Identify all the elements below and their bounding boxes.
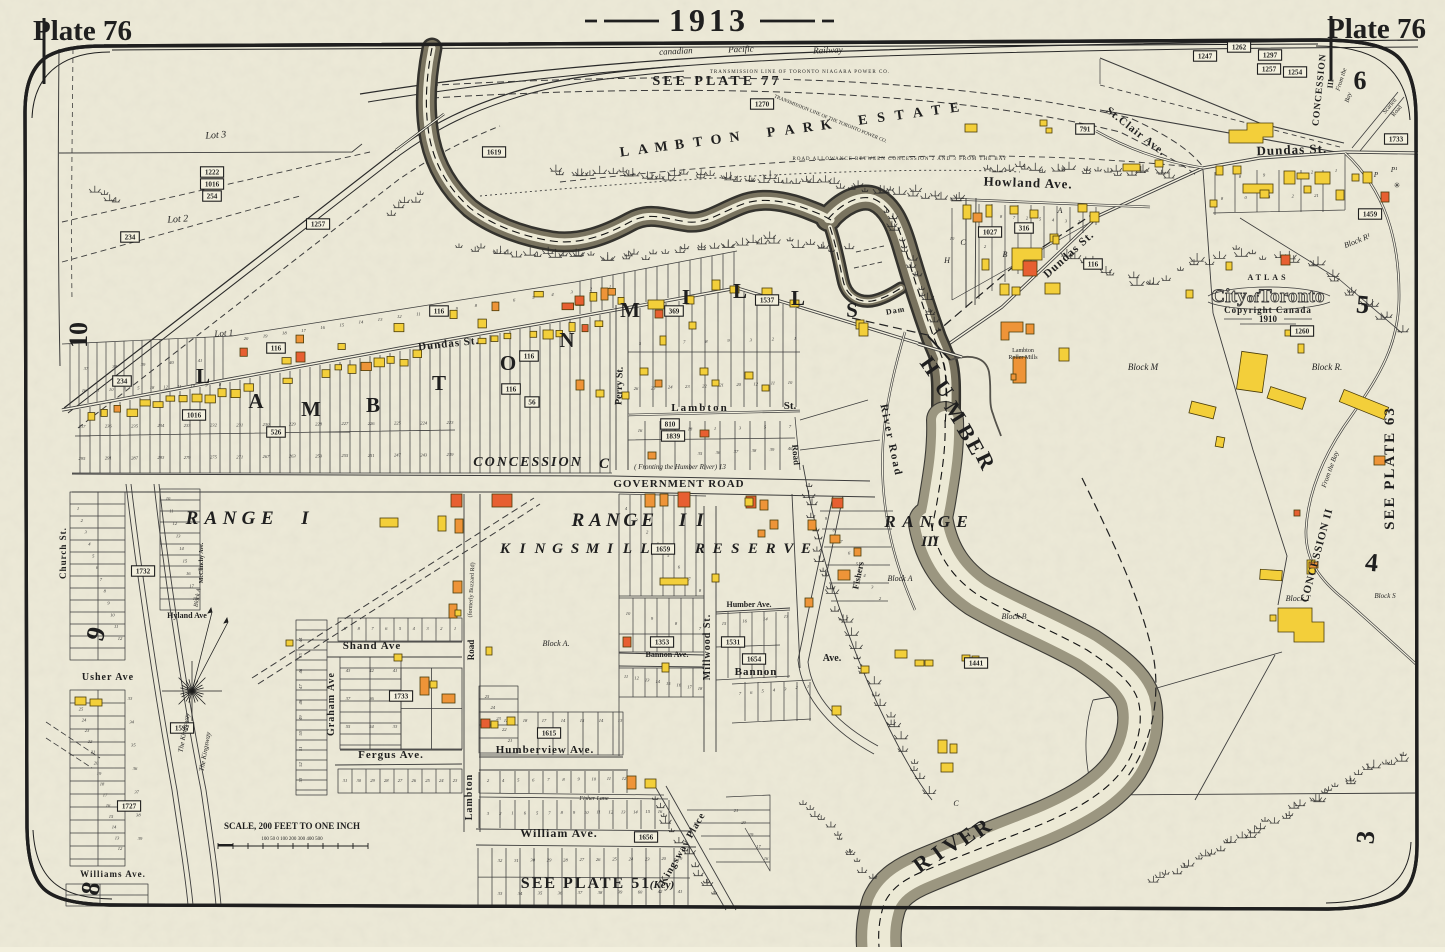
svg-text:228: 228 bbox=[315, 421, 323, 426]
svg-text:526: 526 bbox=[271, 429, 282, 437]
svg-text:44: 44 bbox=[298, 637, 303, 642]
svg-text:13: 13 bbox=[645, 677, 650, 682]
svg-text:(Key): (Key) bbox=[650, 879, 674, 891]
svg-text:S: S bbox=[846, 298, 858, 322]
svg-text:23: 23 bbox=[685, 384, 690, 389]
svg-text:41: 41 bbox=[198, 358, 203, 363]
svg-text:1727: 1727 bbox=[122, 803, 137, 811]
svg-text:Ave.: Ave. bbox=[823, 653, 842, 664]
svg-text:10: 10 bbox=[950, 236, 955, 241]
svg-text:III: III bbox=[1326, 79, 1336, 89]
svg-text:Dundas St.: Dundas St. bbox=[1256, 141, 1327, 158]
svg-text:26: 26 bbox=[411, 778, 416, 783]
svg-text:10: 10 bbox=[166, 496, 171, 501]
svg-text:12: 12 bbox=[118, 636, 123, 641]
svg-text:R: R bbox=[883, 512, 895, 531]
svg-text:ATLAS: ATLAS bbox=[1247, 273, 1288, 282]
svg-text:E: E bbox=[640, 510, 654, 531]
svg-text:3: 3 bbox=[1351, 830, 1381, 845]
svg-text:Fergus Ave.: Fergus Ave. bbox=[358, 749, 424, 761]
svg-text:N: N bbox=[559, 328, 574, 352]
svg-text:21: 21 bbox=[734, 808, 739, 813]
svg-text:24: 24 bbox=[490, 705, 495, 710]
svg-text:11: 11 bbox=[95, 387, 99, 392]
svg-text:20: 20 bbox=[244, 336, 249, 341]
svg-text:1656: 1656 bbox=[639, 834, 654, 842]
svg-text:C: C bbox=[953, 799, 959, 808]
svg-text:ROAD ALLOWANCE BETWEEN CONCESS: ROAD ALLOWANCE BETWEEN CONCESSION 2 AND … bbox=[793, 157, 1008, 162]
svg-text:N: N bbox=[605, 510, 621, 531]
svg-text:N: N bbox=[919, 512, 933, 531]
svg-text:233: 233 bbox=[184, 423, 192, 428]
svg-text:SCALE, 200 FEET TO ONE INCH: SCALE, 200 FEET TO ONE INCH bbox=[224, 821, 360, 831]
svg-text:39: 39 bbox=[138, 836, 143, 841]
svg-text:Lambton: Lambton bbox=[671, 402, 728, 414]
svg-text:13: 13 bbox=[115, 835, 120, 840]
svg-text:56: 56 bbox=[528, 399, 536, 407]
svg-text:43: 43 bbox=[346, 668, 351, 673]
svg-text:1: 1 bbox=[794, 336, 796, 341]
svg-text:19: 19 bbox=[749, 832, 754, 837]
svg-text:21: 21 bbox=[508, 738, 513, 743]
svg-text:41: 41 bbox=[678, 889, 683, 894]
svg-text:1910: 1910 bbox=[1259, 314, 1278, 324]
svg-text:Usher Ave: Usher Ave bbox=[82, 672, 134, 683]
svg-text:14: 14 bbox=[359, 320, 364, 325]
svg-text:G: G bbox=[552, 541, 563, 557]
svg-text:C: C bbox=[960, 238, 966, 247]
svg-text:263: 263 bbox=[289, 454, 297, 459]
svg-text:1353: 1353 bbox=[655, 639, 670, 647]
svg-text:11: 11 bbox=[114, 624, 118, 629]
svg-text:291: 291 bbox=[105, 456, 112, 461]
svg-text:Road: Road bbox=[790, 444, 802, 465]
svg-text:24: 24 bbox=[82, 717, 87, 722]
svg-text:1297: 1297 bbox=[1263, 52, 1278, 60]
svg-text:16: 16 bbox=[82, 388, 87, 393]
svg-text:267: 267 bbox=[263, 454, 271, 459]
svg-text:49: 49 bbox=[298, 715, 303, 720]
svg-text:15: 15 bbox=[645, 809, 650, 814]
svg-text:28: 28 bbox=[563, 857, 568, 862]
svg-text:10: 10 bbox=[110, 612, 115, 617]
svg-text:McClinchy Ave.: McClinchy Ave. bbox=[199, 542, 205, 583]
svg-text:15: 15 bbox=[722, 621, 727, 626]
svg-text:1732: 1732 bbox=[136, 568, 151, 576]
svg-text:24: 24 bbox=[439, 778, 444, 783]
svg-text:11: 11 bbox=[177, 384, 181, 389]
svg-text:232: 232 bbox=[210, 423, 218, 428]
svg-text:Block M: Block M bbox=[1128, 362, 1159, 372]
svg-text:16: 16 bbox=[658, 809, 663, 814]
svg-text:17: 17 bbox=[189, 584, 194, 589]
svg-text:21: 21 bbox=[1314, 193, 1319, 198]
svg-text:N: N bbox=[222, 508, 238, 529]
svg-text:46: 46 bbox=[298, 668, 303, 673]
svg-text:10: 10 bbox=[584, 810, 589, 815]
svg-text:Railway: Railway bbox=[812, 44, 843, 55]
svg-text:A: A bbox=[248, 389, 264, 413]
svg-text:229: 229 bbox=[289, 422, 297, 427]
svg-text:225: 225 bbox=[394, 421, 402, 426]
svg-text:1531: 1531 bbox=[726, 639, 741, 647]
svg-text:29: 29 bbox=[370, 778, 375, 783]
svg-text:15: 15 bbox=[339, 322, 344, 327]
svg-text:1257: 1257 bbox=[311, 221, 326, 229]
svg-text:37: 37 bbox=[734, 449, 739, 454]
svg-text:14: 14 bbox=[179, 546, 184, 551]
svg-text:P¹: P¹ bbox=[1390, 166, 1397, 174]
svg-text:Fisher Lane: Fisher Lane bbox=[578, 796, 609, 802]
svg-text:III: III bbox=[920, 534, 940, 550]
svg-text:52: 52 bbox=[298, 761, 303, 766]
svg-text:11: 11 bbox=[607, 776, 611, 781]
svg-text:26: 26 bbox=[596, 857, 601, 862]
svg-text:Hyland Ave: Hyland Ave bbox=[167, 611, 207, 620]
svg-text:Bannon: Bannon bbox=[735, 666, 778, 678]
svg-text:Block R.: Block R. bbox=[1312, 362, 1343, 372]
svg-text:48: 48 bbox=[298, 699, 303, 704]
svg-text:51: 51 bbox=[298, 747, 303, 752]
svg-text:1016: 1016 bbox=[205, 181, 220, 189]
svg-text:5: 5 bbox=[1355, 290, 1370, 320]
svg-text:E: E bbox=[260, 508, 274, 529]
svg-text:1459: 1459 bbox=[1363, 211, 1378, 219]
svg-text:18: 18 bbox=[150, 385, 155, 390]
svg-text:15: 15 bbox=[666, 681, 671, 686]
svg-text:22: 22 bbox=[88, 739, 93, 744]
svg-text:810: 810 bbox=[665, 421, 676, 429]
svg-text:1913: 1913 bbox=[669, 2, 749, 38]
svg-text:14: 14 bbox=[763, 616, 768, 621]
svg-text:1254: 1254 bbox=[1288, 69, 1303, 77]
svg-text:13: 13 bbox=[378, 317, 383, 322]
svg-text:226: 226 bbox=[368, 421, 376, 426]
svg-text:12: 12 bbox=[172, 521, 177, 526]
svg-text:1262: 1262 bbox=[1232, 44, 1247, 52]
svg-text:37: 37 bbox=[346, 696, 351, 701]
svg-text:227: 227 bbox=[341, 421, 349, 426]
svg-text:R: R bbox=[571, 510, 585, 531]
svg-text:SEE PLATE 51: SEE PLATE 51 bbox=[521, 875, 651, 892]
svg-text:32: 32 bbox=[498, 858, 503, 863]
svg-text:12: 12 bbox=[609, 810, 614, 815]
svg-text:Church St.: Church St. bbox=[58, 527, 68, 579]
svg-text:259: 259 bbox=[315, 453, 323, 458]
svg-text:Humberview Ave.: Humberview Ave. bbox=[496, 744, 595, 756]
svg-text:16: 16 bbox=[677, 683, 682, 688]
svg-text:Lot 2: Lot 2 bbox=[166, 213, 189, 225]
svg-text:237: 237 bbox=[79, 424, 87, 429]
svg-text:17: 17 bbox=[103, 792, 108, 797]
svg-text:17: 17 bbox=[687, 684, 692, 689]
svg-text:15: 15 bbox=[109, 814, 114, 819]
svg-text:31: 31 bbox=[343, 778, 348, 783]
svg-text:M: M bbox=[620, 298, 640, 322]
svg-text:271: 271 bbox=[236, 454, 243, 459]
svg-text:247: 247 bbox=[394, 453, 402, 458]
svg-text:47: 47 bbox=[298, 684, 303, 689]
svg-text:23: 23 bbox=[453, 778, 458, 783]
svg-text:1247: 1247 bbox=[1198, 53, 1213, 61]
svg-text:1: 1 bbox=[807, 684, 809, 689]
svg-text:27: 27 bbox=[398, 778, 403, 783]
svg-text:25: 25 bbox=[612, 857, 617, 862]
svg-text:12: 12 bbox=[753, 381, 758, 386]
svg-text:12: 12 bbox=[634, 676, 639, 681]
svg-text:279: 279 bbox=[184, 455, 192, 460]
svg-text:18: 18 bbox=[698, 686, 703, 691]
svg-text:116: 116 bbox=[1088, 261, 1099, 269]
svg-text:38: 38 bbox=[136, 813, 141, 818]
svg-text:10: 10 bbox=[626, 611, 631, 616]
svg-text:20: 20 bbox=[94, 760, 99, 765]
svg-text:C: C bbox=[599, 456, 610, 472]
svg-text:R: R bbox=[185, 508, 199, 529]
svg-text:30: 30 bbox=[530, 858, 535, 863]
svg-text:1: 1 bbox=[77, 506, 79, 511]
svg-text:116: 116 bbox=[506, 386, 517, 394]
svg-text:38: 38 bbox=[752, 448, 757, 453]
svg-text:24: 24 bbox=[629, 857, 634, 862]
svg-text:Williams Ave.: Williams Ave. bbox=[80, 869, 146, 879]
svg-text:11: 11 bbox=[169, 509, 173, 514]
svg-text:Millwood St.: Millwood St. bbox=[702, 614, 713, 680]
svg-text:B: B bbox=[366, 393, 380, 417]
svg-text:116: 116 bbox=[524, 353, 535, 361]
svg-text:39: 39 bbox=[141, 362, 146, 367]
svg-text:17: 17 bbox=[542, 718, 547, 723]
svg-text:116: 116 bbox=[434, 308, 445, 316]
svg-text:T: T bbox=[432, 371, 446, 395]
svg-text:235: 235 bbox=[131, 423, 139, 428]
svg-text:25: 25 bbox=[79, 707, 84, 712]
svg-text:53: 53 bbox=[298, 777, 303, 782]
svg-text:33: 33 bbox=[393, 724, 398, 729]
svg-text:35: 35 bbox=[131, 743, 136, 748]
svg-text:38: 38 bbox=[112, 364, 117, 369]
svg-text:TRANSMISSION LINE OF TORONTO N: TRANSMISSION LINE OF TORONTO NIAGARA POW… bbox=[710, 70, 890, 75]
svg-text:SEE PLATE 77: SEE PLATE 77 bbox=[652, 74, 781, 89]
svg-text:I: I bbox=[695, 510, 704, 531]
svg-text:11: 11 bbox=[416, 311, 420, 316]
svg-text:18: 18 bbox=[100, 782, 105, 787]
svg-text:12: 12 bbox=[622, 776, 627, 781]
svg-text:39: 39 bbox=[770, 447, 775, 452]
svg-text:11: 11 bbox=[596, 810, 600, 815]
svg-text:1: 1 bbox=[714, 426, 716, 431]
svg-text:239: 239 bbox=[447, 452, 455, 457]
svg-text:223: 223 bbox=[447, 420, 455, 425]
svg-text:I: I bbox=[606, 541, 614, 557]
svg-text:CONCESSION: CONCESSION bbox=[473, 455, 582, 470]
svg-text:15: 15 bbox=[183, 559, 188, 564]
svg-text:283: 283 bbox=[157, 455, 165, 460]
svg-text:M: M bbox=[585, 541, 600, 557]
svg-text:25: 25 bbox=[425, 778, 430, 783]
svg-text:234: 234 bbox=[125, 234, 136, 242]
svg-text:31: 31 bbox=[514, 858, 519, 863]
svg-text:20: 20 bbox=[736, 382, 741, 387]
svg-text:E: E bbox=[712, 541, 723, 557]
svg-text:231: 231 bbox=[236, 422, 243, 427]
svg-text:1: 1 bbox=[511, 811, 513, 816]
svg-text:Block A.: Block A. bbox=[543, 639, 570, 648]
svg-text:1839: 1839 bbox=[666, 433, 681, 441]
svg-text:12: 12 bbox=[397, 314, 402, 319]
svg-text:10: 10 bbox=[109, 387, 114, 392]
svg-text:N: N bbox=[728, 130, 740, 146]
svg-text:G: G bbox=[938, 512, 951, 531]
svg-text:255: 255 bbox=[341, 453, 349, 458]
svg-text:CityofToronto: CityofToronto bbox=[1211, 286, 1325, 307]
svg-text:37: 37 bbox=[84, 366, 89, 371]
svg-text:23: 23 bbox=[85, 728, 90, 733]
svg-text:116: 116 bbox=[271, 345, 282, 353]
svg-text:1016: 1016 bbox=[187, 412, 202, 420]
svg-text:11: 11 bbox=[624, 674, 628, 679]
svg-text:18: 18 bbox=[523, 718, 528, 723]
svg-text:12: 12 bbox=[163, 384, 168, 389]
svg-text:287: 287 bbox=[131, 455, 139, 460]
svg-text:11: 11 bbox=[771, 381, 775, 386]
svg-text:E: E bbox=[955, 512, 967, 531]
svg-text:17: 17 bbox=[301, 328, 306, 333]
svg-text:20: 20 bbox=[661, 856, 666, 861]
svg-text:37: 37 bbox=[134, 789, 139, 794]
svg-text:Bannon Ave.: Bannon Ave. bbox=[646, 650, 689, 659]
svg-text:19: 19 bbox=[263, 333, 268, 338]
svg-text:236: 236 bbox=[105, 424, 113, 429]
svg-text:10: 10 bbox=[591, 776, 596, 781]
svg-text:M: M bbox=[654, 139, 669, 156]
svg-text:L: L bbox=[791, 286, 805, 310]
svg-text:21: 21 bbox=[91, 750, 96, 755]
svg-text:16: 16 bbox=[742, 619, 747, 624]
svg-text:1027: 1027 bbox=[983, 229, 998, 237]
svg-text:26: 26 bbox=[634, 386, 639, 391]
svg-text:I: I bbox=[519, 541, 527, 557]
svg-text:St.: St. bbox=[784, 400, 797, 412]
svg-text:L: L bbox=[639, 541, 649, 557]
svg-text:1257: 1257 bbox=[1262, 66, 1277, 74]
svg-text:16: 16 bbox=[320, 325, 325, 330]
svg-text:1619: 1619 bbox=[487, 149, 502, 157]
svg-text:SEE PLATE 63: SEE PLATE 63 bbox=[1382, 406, 1398, 530]
svg-text:316: 316 bbox=[1019, 225, 1030, 233]
svg-text:16: 16 bbox=[186, 571, 191, 576]
svg-text:Plate 76: Plate 76 bbox=[33, 15, 132, 47]
svg-text:27: 27 bbox=[580, 857, 585, 862]
svg-text:24: 24 bbox=[668, 385, 673, 390]
svg-text:R: R bbox=[694, 541, 705, 557]
svg-text:1270: 1270 bbox=[755, 101, 770, 109]
svg-text:B: B bbox=[1003, 250, 1008, 259]
svg-text:L: L bbox=[733, 279, 747, 303]
svg-text:23: 23 bbox=[645, 856, 650, 861]
svg-text:1222: 1222 bbox=[205, 169, 220, 177]
svg-text:L: L bbox=[196, 364, 210, 388]
svg-text:33: 33 bbox=[128, 696, 133, 701]
svg-text:35: 35 bbox=[698, 451, 703, 456]
svg-text:45: 45 bbox=[298, 653, 303, 658]
svg-text:E: E bbox=[800, 541, 811, 557]
svg-text:Roller Mills: Roller Mills bbox=[1008, 355, 1038, 361]
svg-text:30: 30 bbox=[356, 778, 361, 783]
svg-text:17: 17 bbox=[756, 844, 761, 849]
svg-text:18: 18 bbox=[282, 331, 287, 336]
svg-text:Humber Ave.: Humber Ave. bbox=[726, 600, 771, 609]
svg-text:16: 16 bbox=[638, 428, 643, 433]
svg-text:1659: 1659 bbox=[656, 546, 671, 554]
svg-text:Lot 3: Lot 3 bbox=[204, 129, 227, 141]
svg-text:O: O bbox=[500, 351, 516, 375]
svg-text:Block A: Block A bbox=[888, 574, 913, 583]
svg-text:234: 234 bbox=[117, 378, 128, 386]
svg-text:Lot 1: Lot 1 bbox=[213, 327, 233, 338]
svg-text:369: 369 bbox=[669, 308, 680, 316]
svg-text:10: 10 bbox=[788, 380, 793, 385]
svg-text:23: 23 bbox=[496, 716, 501, 721]
svg-text:54: 54 bbox=[369, 724, 374, 729]
svg-text:36: 36 bbox=[133, 766, 138, 771]
svg-text:1654: 1654 bbox=[747, 656, 762, 664]
svg-text:1441: 1441 bbox=[969, 660, 984, 668]
svg-text:K: K bbox=[820, 117, 833, 133]
svg-text:1: 1 bbox=[1335, 168, 1337, 173]
svg-text:I: I bbox=[300, 508, 309, 529]
svg-text:S: S bbox=[731, 541, 739, 557]
svg-text:A: A bbox=[588, 510, 602, 531]
svg-text:29: 29 bbox=[547, 857, 552, 862]
svg-text:791: 791 bbox=[1080, 126, 1091, 134]
svg-text:Lambton: Lambton bbox=[464, 774, 475, 820]
svg-text:R: R bbox=[765, 541, 776, 557]
svg-text:12: 12 bbox=[118, 846, 123, 851]
svg-text:13: 13 bbox=[618, 718, 623, 723]
svg-text:1260: 1260 bbox=[1295, 328, 1310, 336]
svg-text:A: A bbox=[203, 508, 217, 529]
svg-text:N: N bbox=[534, 541, 547, 557]
svg-text:( Fronting the Humber River) 1: ( Fronting the Humber River) 13 bbox=[634, 463, 726, 471]
svg-text:M: M bbox=[301, 397, 321, 421]
svg-text:14: 14 bbox=[655, 679, 660, 684]
svg-text:14: 14 bbox=[561, 718, 566, 723]
svg-text:I: I bbox=[682, 285, 690, 309]
svg-text:42: 42 bbox=[369, 668, 374, 673]
svg-text:234: 234 bbox=[157, 423, 165, 428]
svg-text:13: 13 bbox=[784, 614, 789, 619]
svg-text:36: 36 bbox=[369, 696, 374, 701]
svg-text:41: 41 bbox=[393, 668, 398, 673]
svg-text:33: 33 bbox=[498, 891, 503, 896]
svg-text:15: 15 bbox=[580, 718, 585, 723]
svg-text:Shand Ave: Shand Ave bbox=[343, 640, 402, 652]
svg-text:251: 251 bbox=[368, 453, 375, 458]
svg-text:100 50 0 100: 100 50 0 100 200 300 400 500 bbox=[261, 837, 323, 842]
svg-text:18: 18 bbox=[688, 427, 693, 432]
svg-text:13: 13 bbox=[621, 809, 626, 814]
svg-text:4: 4 bbox=[1364, 548, 1379, 578]
svg-text:6: 6 bbox=[1354, 66, 1367, 95]
svg-text:Perry St.: Perry St. bbox=[613, 366, 625, 405]
svg-text:13: 13 bbox=[176, 534, 181, 539]
svg-text:G: G bbox=[623, 510, 637, 531]
svg-text:A: A bbox=[901, 512, 913, 531]
svg-text:34: 34 bbox=[129, 719, 134, 724]
svg-text:22: 22 bbox=[702, 383, 707, 388]
svg-text:William Ave.: William Ave. bbox=[520, 826, 598, 840]
